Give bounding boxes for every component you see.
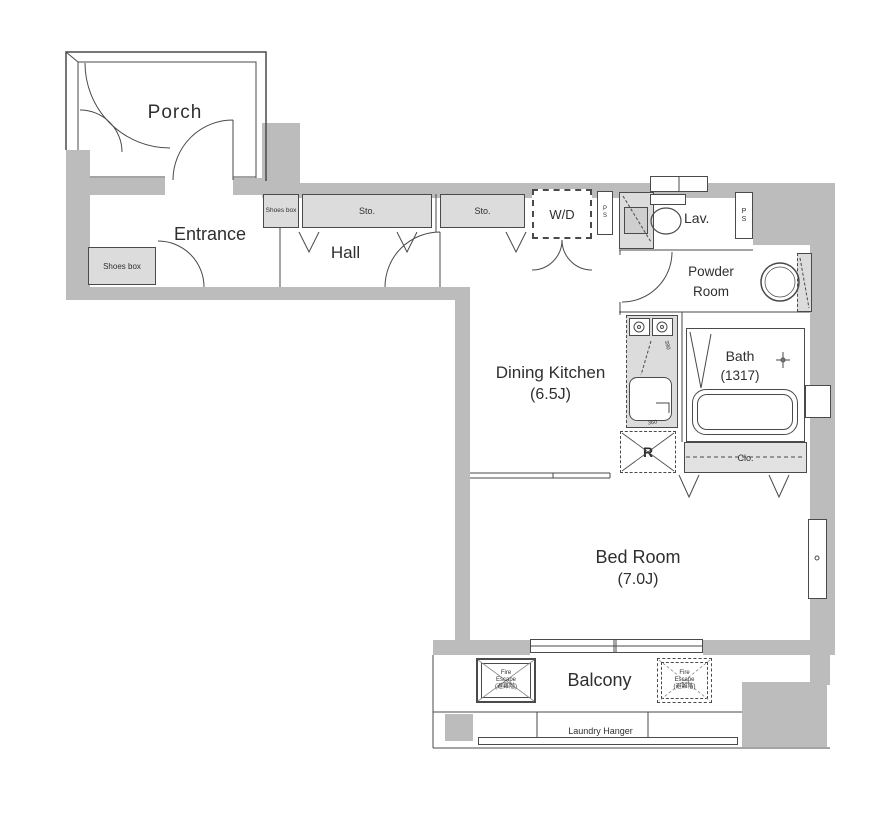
- washer-dryer-label: W/D: [549, 207, 574, 222]
- room-label-porch: Porch: [130, 102, 220, 125]
- room-label-powder-room: Powder Room: [678, 262, 744, 303]
- dimension-sink: 360: [648, 419, 658, 427]
- fire-escape-2-line3: (避難階): [674, 684, 696, 691]
- wall-entrance-top-left: [88, 178, 165, 195]
- room-size-bed-room: (7.0J): [558, 570, 718, 589]
- stove-burner-1: [629, 318, 650, 336]
- storage-door-mark-1: [299, 232, 319, 252]
- wall-balcony-right-block: [742, 682, 827, 747]
- washing-machine-icon: [761, 263, 799, 301]
- wall-top-right-chunk: [753, 196, 835, 245]
- refrigerator-label: R: [643, 444, 653, 460]
- room-size-dining-kitchen: (6.5J): [473, 385, 628, 404]
- pipe-space-1: PS: [597, 191, 613, 235]
- fire-escape-2-line2: Escape: [674, 677, 694, 684]
- porch-corner-tick: [66, 52, 78, 62]
- label-laundry-hanger: Laundry Hanger: [548, 726, 653, 737]
- storage-door-mark-3: [506, 232, 526, 252]
- storage-door-mark-2: [397, 232, 417, 252]
- shoes-box-large: Shoes box: [88, 247, 156, 285]
- lavatory-fixture-box: [624, 207, 648, 234]
- pipe-space-1-label: PS: [602, 206, 608, 220]
- powder-room-vanity: [797, 253, 812, 312]
- shoes-box-large-label: Shoes box: [103, 262, 141, 271]
- fire-escape-1-line1: Fire: [501, 670, 511, 677]
- room-label-bath: Bath: [700, 348, 780, 365]
- toilet-icon: [651, 208, 681, 234]
- room-size-bath: (1317): [697, 368, 783, 384]
- shoes-box-small: Shoes box: [263, 194, 299, 228]
- kitchen-sink: [629, 377, 672, 421]
- fire-escape-2-line1: Fire: [679, 670, 689, 677]
- wall-porch-right-block: [262, 123, 300, 198]
- closet-door-mark-1: [679, 475, 699, 497]
- window-bath: [805, 385, 831, 418]
- stove-burner-2: [652, 318, 673, 336]
- storage-2: Sto.: [440, 194, 525, 228]
- room-label-balcony: Balcony: [552, 670, 647, 692]
- laundry-hanger-bar: [478, 737, 738, 745]
- pipe-space-2: PS: [735, 192, 753, 239]
- window-bedroom-right: [808, 519, 827, 599]
- floor-plan: Shoes box Shoes box Sto. Sto. Clo. W/D P…: [0, 0, 885, 824]
- storage-2-label: Sto.: [474, 206, 490, 216]
- front-door-arc: [173, 120, 233, 180]
- washing-machine-icon-inner: [765, 267, 795, 297]
- wall-balcony-left-block: [445, 714, 473, 741]
- closet-door-mark-2: [769, 475, 789, 497]
- fire-escape-1-line3: (避難階): [495, 684, 517, 691]
- hall-dk-door-arc: [385, 232, 440, 287]
- wall-entrance-top-right: [233, 178, 262, 195]
- refrigerator-space: R: [620, 431, 676, 473]
- washer-dryer-space: W/D: [532, 189, 592, 239]
- fire-escape-text-2: Fire Escape (避難階): [657, 658, 712, 703]
- pipe-space-2-label: PS: [741, 208, 748, 224]
- window-balcony-sliding: [530, 639, 703, 653]
- porch-side-door-arc: [80, 110, 122, 152]
- room-label-bed-room: Bed Room: [558, 547, 718, 569]
- room-label-dining-kitchen: Dining Kitchen: [473, 363, 628, 383]
- window-top: [650, 176, 708, 192]
- wall-left-strip: [66, 150, 90, 300]
- room-label-hall: Hall: [318, 243, 373, 263]
- shoes-box-small-label: Shoes box: [266, 207, 297, 214]
- bathtub-inner: [697, 394, 793, 430]
- wall-dk-left: [455, 300, 470, 645]
- powder-room-door-arc: [622, 252, 672, 302]
- entrance-door-arc: [158, 241, 204, 287]
- fire-escape-1-line2: Escape: [496, 677, 516, 684]
- wall-right-extension: [810, 655, 830, 685]
- washer-dryer-door-arcs: [532, 240, 592, 270]
- closet: Clo.: [684, 442, 807, 473]
- closet-label: Clo.: [737, 453, 753, 463]
- storage-1-label: Sto.: [359, 206, 375, 216]
- wall-bedroom-bottom-left: [433, 640, 530, 655]
- toilet-cistern: [650, 194, 686, 205]
- room-label-lavatory: Lav.: [684, 210, 709, 227]
- storage-1: Sto.: [302, 194, 432, 228]
- room-label-entrance: Entrance: [160, 224, 260, 246]
- wall-corridor-bottom: [66, 287, 470, 300]
- fire-escape-text-1: Fire Escape (避難階): [476, 658, 536, 703]
- dk-bedroom-sliding-door: [470, 473, 610, 478]
- wall-bedroom-bottom-right: [703, 640, 812, 655]
